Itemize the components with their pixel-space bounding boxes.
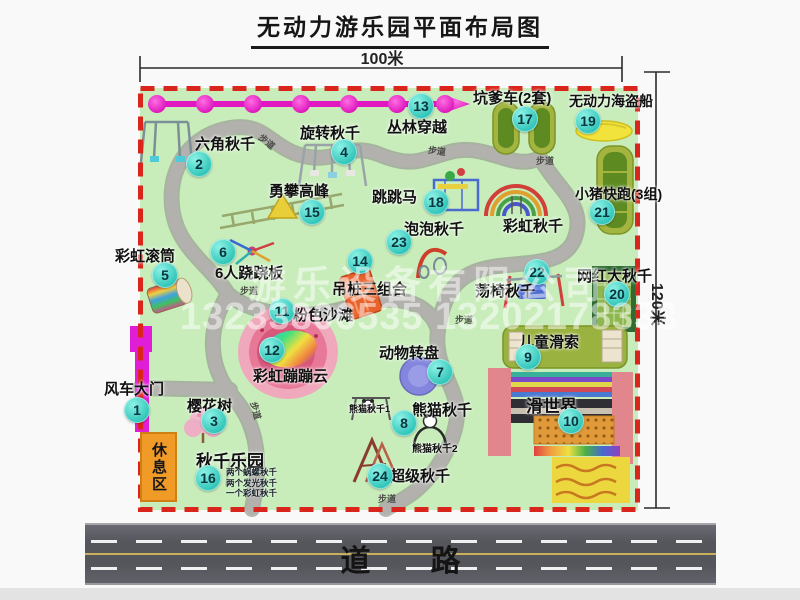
park-map-canvas [0,0,800,600]
marker-item-2: 2 [186,151,212,177]
marker-item-11: 11 [269,298,295,324]
marker-item-8: 8 [391,410,417,436]
road: 道 路 [85,523,716,585]
label-item-1: 风车大门 [104,378,164,399]
marker-item-4: 4 [331,139,357,165]
label-item-7: 动物转盘 [379,342,439,363]
marker-item-24: 24 [367,463,393,489]
marker-item-17: 17 [512,106,538,132]
footpath-label-7: 步道 [378,492,396,505]
label-panda-swing-1: 熊猫秋千1 [349,402,390,415]
marker-item-3: 3 [201,408,227,434]
label-item-22: 荡椅秋千 [475,280,535,301]
marker-item-22: 22 [524,259,550,285]
label-item-12: 彩虹蹦蹦云 [253,365,328,386]
marker-item-14: 14 [347,248,373,274]
label-item-17: 坑爹车(2套) [473,87,551,108]
marker-item-7: 7 [427,359,453,385]
footpath-label-3: 步道 [536,154,554,167]
marker-item-21: 21 [589,199,615,225]
label-item-6: 6人跷跷板 [215,262,283,283]
swing-park-sub-3: 一个彩虹秋千 [226,488,277,499]
label-item-14: 吊桩三组合 [332,278,407,299]
road-label: 道 路 [85,536,716,580]
label-item-11: 粉色沙滩 [293,304,353,325]
label-item-13: 丛林穿越 [387,116,447,137]
label-item-21: 小猪快跑(3组) [575,184,662,204]
marker-item-5: 5 [152,262,178,288]
marker-item-20: 20 [604,281,630,307]
marker-item-18: 18 [423,189,449,215]
marker-item-13: 13 [408,93,434,119]
marker-item-9: 9 [515,344,541,370]
swing-park-sub-1: 两个蜗螺秋千 [226,467,277,478]
label-item-19: 无动力海盗船 [569,91,653,111]
marker-item-15: 15 [299,199,325,225]
label-item-2: 六角秋千 [195,133,255,154]
marker-item-19: 19 [575,108,601,134]
label-item-8: 熊猫秋千 [412,399,472,420]
rest-area-label: 休息区 [148,442,169,493]
footpath-label-6: 步道 [455,313,473,326]
marker-item-10: 10 [558,408,584,434]
label-rainbow-swing: 彩虹秋千 [503,215,563,236]
label-item-23: 泡泡秋千 [404,218,464,239]
marker-item-1: 1 [124,397,150,423]
label-item-24: 超级秋千 [390,465,450,486]
rest-area: 休息区 [140,432,177,502]
footpath-label-4: 步道 [240,284,258,297]
marker-item-12: 12 [259,337,285,363]
marker-item-16: 16 [195,465,221,491]
label-item-15: 勇攀高峰 [269,180,329,201]
marker-item-23: 23 [386,229,412,255]
swing-park-sublist: 两个蜗螺秋千 两个发光秋千 一个彩虹秋千 [226,467,277,499]
label-item-4: 旋转秋千 [300,122,360,143]
label-item-18: 跳跳马 [372,186,417,207]
footpath-label-2: 步道 [427,143,447,158]
park-layout-page: 无动力游乐园平面布局图 100米 120米 [0,0,800,600]
swing-park-sub-2: 两个发光秋千 [226,478,277,489]
marker-item-6: 6 [210,239,236,265]
label-panda-swing-2: 熊猫秋千2 [412,440,458,455]
